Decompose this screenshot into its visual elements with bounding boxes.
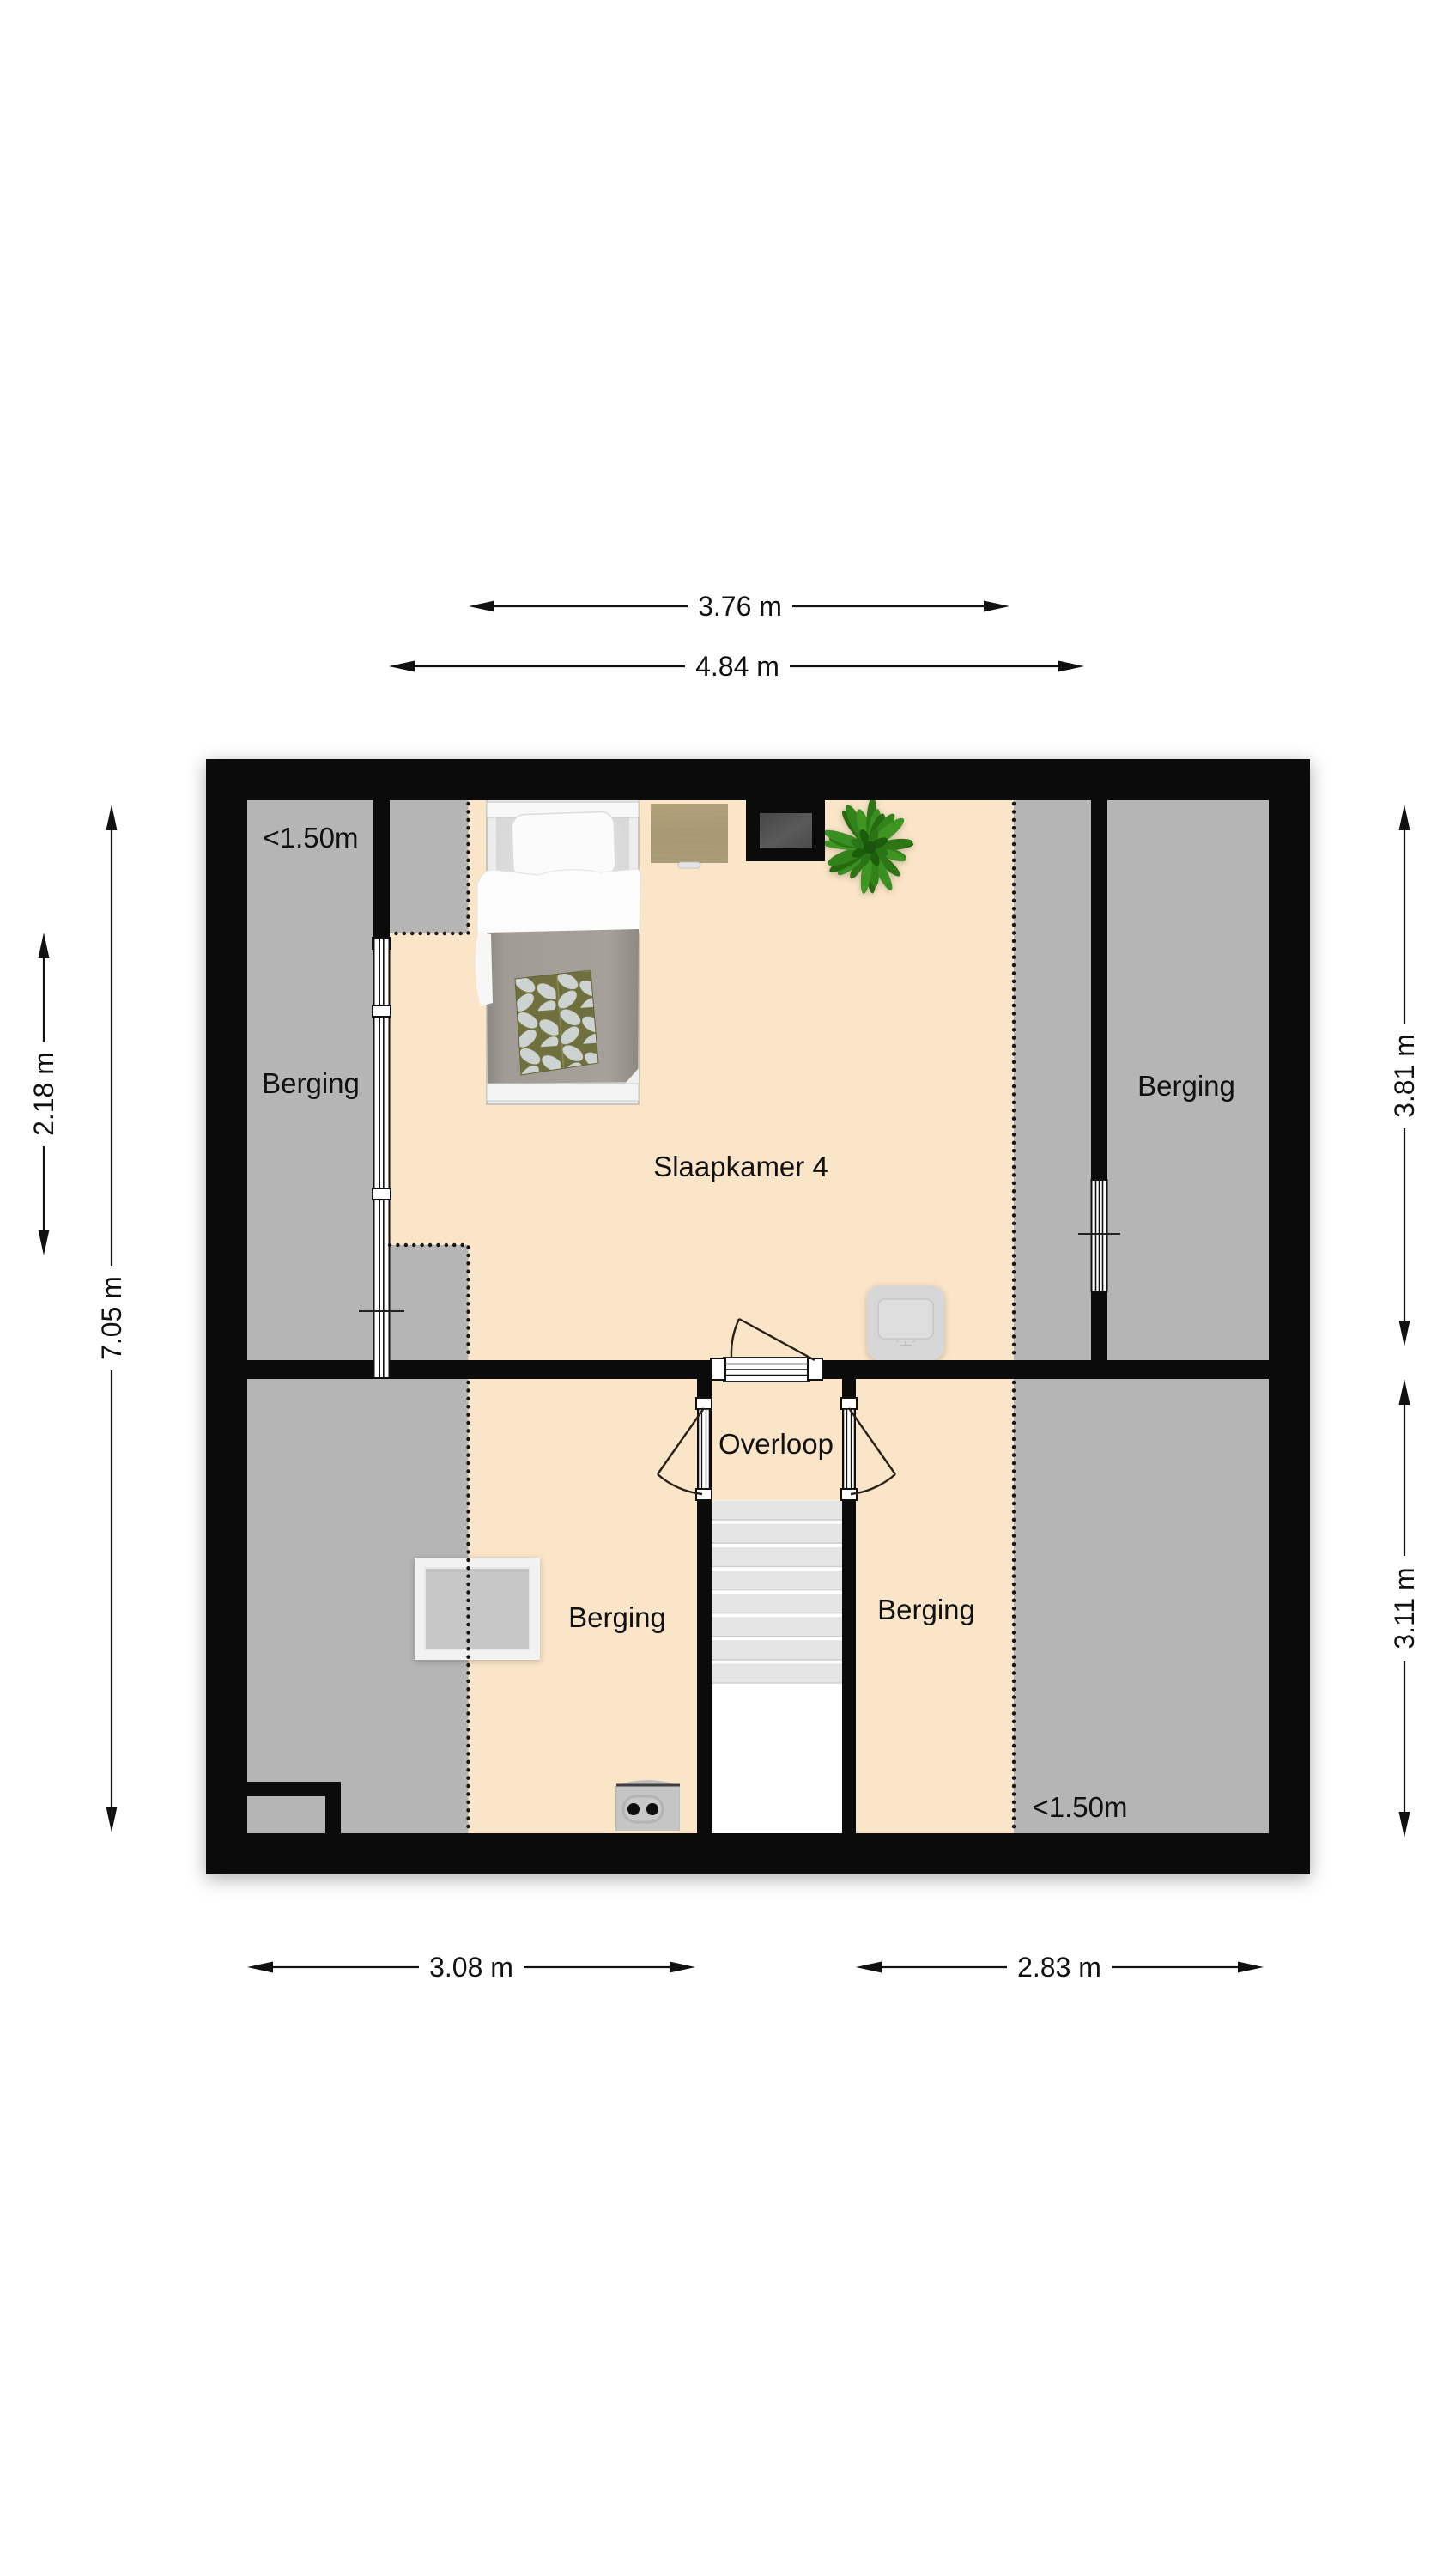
svg-text:<1.50m: <1.50m (1033, 1791, 1128, 1823)
svg-text:Berging: Berging (262, 1067, 360, 1099)
svg-text:Slaapkamer 4: Slaapkamer 4 (653, 1151, 828, 1182)
svg-text:3.76 m: 3.76 m (698, 591, 782, 622)
svg-text:3.08 m: 3.08 m (429, 1952, 513, 1983)
svg-text:Overloop: Overloop (718, 1428, 834, 1460)
svg-text:2.83 m: 2.83 m (1017, 1952, 1101, 1983)
svg-text:7.05 m: 7.05 m (96, 1276, 127, 1360)
svg-text:Berging: Berging (877, 1594, 975, 1625)
svg-text:2.18 m: 2.18 m (28, 1052, 59, 1136)
svg-text:<1.50m: <1.50m (264, 822, 359, 854)
svg-text:4.84 m: 4.84 m (695, 651, 779, 682)
svg-text:Berging: Berging (1137, 1070, 1235, 1102)
svg-text:Berging: Berging (568, 1601, 666, 1633)
svg-text:3.81 m: 3.81 m (1389, 1034, 1420, 1118)
svg-text:3.11 m: 3.11 m (1389, 1567, 1420, 1649)
